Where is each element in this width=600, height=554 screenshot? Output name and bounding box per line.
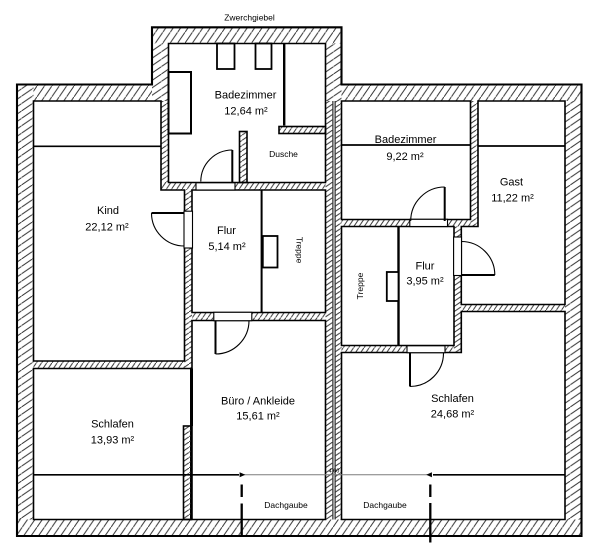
- svg-text:Badezimmer: Badezimmer: [215, 90, 277, 102]
- svg-text:Zwerchgiebel: Zwerchgiebel: [224, 13, 275, 23]
- svg-text:3,95 m²: 3,95 m²: [406, 276, 444, 288]
- svg-text:Dachgaube: Dachgaube: [264, 500, 308, 510]
- svg-text:13,93 m²: 13,93 m²: [91, 435, 135, 447]
- svg-text:22,12 m²: 22,12 m²: [85, 222, 129, 234]
- svg-text:15,61 m²: 15,61 m²: [236, 411, 280, 423]
- svg-text:Schlafen: Schlafen: [431, 393, 474, 405]
- svg-text:Schlafen: Schlafen: [91, 419, 134, 431]
- svg-text:Treppe: Treppe: [295, 237, 305, 264]
- svg-text:Gast: Gast: [500, 177, 523, 189]
- svg-text:Kind: Kind: [97, 205, 119, 217]
- svg-text:4,60: 4,60: [329, 469, 340, 475]
- svg-text:Flur: Flur: [217, 225, 236, 237]
- svg-text:Büro / Ankleide: Büro / Ankleide: [221, 396, 295, 408]
- svg-text:Dusche: Dusche: [269, 149, 298, 159]
- svg-text:12,64 m²: 12,64 m²: [224, 106, 268, 118]
- svg-text:Dachgaube: Dachgaube: [363, 500, 407, 510]
- svg-text:Flur: Flur: [416, 261, 435, 273]
- svg-text:Badezimmer: Badezimmer: [375, 134, 437, 146]
- svg-text:11,22 m²: 11,22 m²: [491, 193, 534, 205]
- svg-text:9,22 m²: 9,22 m²: [386, 151, 424, 163]
- svg-text:24,68 m²: 24,68 m²: [431, 409, 475, 421]
- svg-text:5,14 m²: 5,14 m²: [208, 241, 246, 253]
- svg-text:Treppe: Treppe: [355, 272, 365, 299]
